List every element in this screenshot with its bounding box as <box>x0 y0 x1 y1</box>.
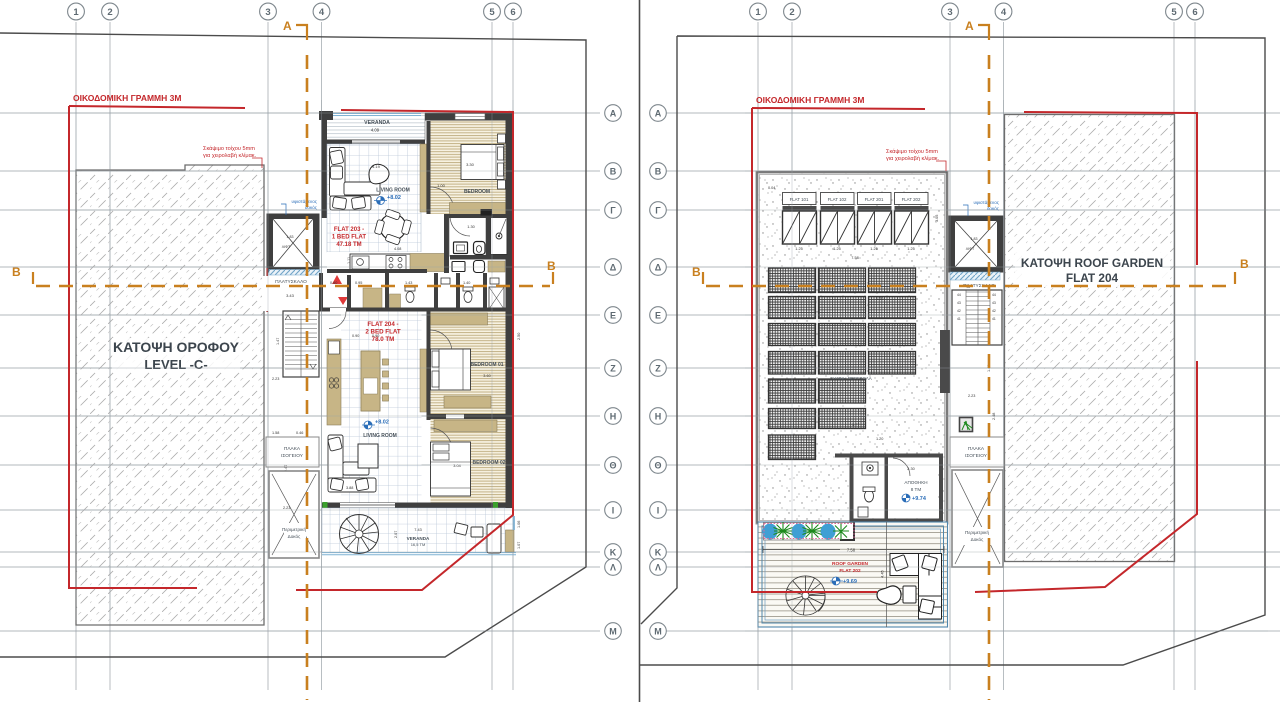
svg-text:2.23: 2.23 <box>283 506 290 510</box>
svg-text:42: 42 <box>992 309 996 313</box>
svg-text:7.58: 7.58 <box>851 256 858 260</box>
svg-text:ΙΣΟΓΕΙΟΥ: ΙΣΟΓΕΙΟΥ <box>281 453 304 459</box>
svg-text:0.90: 0.90 <box>372 334 379 338</box>
svg-text:+9.69: +9.69 <box>843 579 857 585</box>
svg-text:ΙΣΟΓΕΙΟΥ: ΙΣΟΓΕΙΟΥ <box>965 453 988 459</box>
svg-text:BEDROOM 01: BEDROOM 01 <box>470 362 503 368</box>
svg-text:1.20: 1.20 <box>876 297 883 301</box>
svg-text:2 BED FLAT: 2 BED FLAT <box>365 329 401 336</box>
svg-text:B: B <box>547 259 556 273</box>
svg-text:ΚΑΤΟΨΗ ΟΡΟΦΟΥ: ΚΑΤΟΨΗ ΟΡΟΦΟΥ <box>113 339 240 355</box>
svg-text:1.20: 1.20 <box>876 437 883 441</box>
svg-text:1 BED FLAT: 1 BED FLAT <box>332 235 367 241</box>
svg-text:3.60: 3.60 <box>483 374 490 378</box>
svg-text:Δ: Δ <box>655 262 662 272</box>
svg-text:FLAT 201: FLAT 201 <box>865 197 884 202</box>
svg-text:B: B <box>1240 257 1249 271</box>
svg-text:Γ: Γ <box>655 205 661 215</box>
svg-text:47.18 ΤΜ: 47.18 ΤΜ <box>336 242 361 248</box>
svg-text:VERANDA: VERANDA <box>364 120 390 126</box>
svg-text:4: 4 <box>1001 7 1007 18</box>
svg-text:E: E <box>610 310 616 320</box>
svg-text:B: B <box>655 166 662 176</box>
svg-text:1.30: 1.30 <box>467 225 474 229</box>
svg-text:4.45: 4.45 <box>880 569 885 578</box>
svg-text:0.90: 0.90 <box>352 334 359 338</box>
svg-text:K: K <box>610 547 617 557</box>
svg-text:Γ: Γ <box>610 205 616 215</box>
svg-text:LIVING ROOM: LIVING ROOM <box>376 188 410 194</box>
svg-text:H: H <box>610 411 617 421</box>
svg-text:M: M <box>609 626 617 636</box>
svg-text:2.23: 2.23 <box>968 394 975 398</box>
svg-text:2.30: 2.30 <box>907 467 914 471</box>
svg-text:για χειρολαβή κλίμακ.: για χειρολαβή κλίμακ. <box>886 155 940 162</box>
svg-text:Λ: Λ <box>655 562 661 572</box>
svg-text:Σκάψιμο τοίχου 5mm: Σκάψιμο τοίχου 5mm <box>203 145 255 152</box>
svg-text:2: 2 <box>107 7 112 18</box>
svg-text:1.00: 1.00 <box>437 183 446 188</box>
svg-text:42: 42 <box>957 309 961 313</box>
svg-text:Δ: Δ <box>610 262 617 272</box>
svg-text:1.11: 1.11 <box>347 257 351 264</box>
svg-text:4.08: 4.08 <box>394 247 401 251</box>
svg-text:5: 5 <box>489 7 495 18</box>
svg-text:ΠΛΑΤΥΣΚΑΛΟ: ΠΛΑΤΥΣΚΑΛΟ <box>275 279 307 285</box>
svg-text:3.04: 3.04 <box>453 464 460 468</box>
svg-text:ΛΙΦΤ: ΛΙΦΤ <box>966 247 975 251</box>
svg-text:+8.02: +8.02 <box>375 420 389 426</box>
svg-text:BEDROOM: BEDROOM <box>464 189 490 195</box>
svg-text:1.25: 1.25 <box>907 247 914 251</box>
svg-text:FLAT 102: FLAT 102 <box>828 197 847 202</box>
svg-text:ΟΙΚΟΔΟΜΙΚΗ ΓΡΑΜΜΗ 3Μ: ΟΙΚΟΔΟΜΙΚΗ ΓΡΑΜΜΗ 3Μ <box>756 95 864 105</box>
svg-text:I: I <box>657 505 660 515</box>
svg-text:43: 43 <box>957 301 961 305</box>
svg-text:E: E <box>655 310 661 320</box>
svg-text:1.25: 1.25 <box>795 247 802 251</box>
svg-text:FLAT 204 -: FLAT 204 - <box>367 321 398 328</box>
svg-text:8 ΤΜ: 8 ΤΜ <box>911 487 922 492</box>
svg-text:ΛΙΦΤ: ΛΙΦΤ <box>282 245 291 249</box>
svg-text:Z: Z <box>610 363 616 373</box>
svg-text:2.07: 2.07 <box>394 531 398 538</box>
svg-text:B: B <box>692 265 701 279</box>
svg-text:3.43: 3.43 <box>286 293 295 298</box>
svg-text:3.88: 3.88 <box>346 486 353 490</box>
svg-text:1.83: 1.83 <box>287 235 294 239</box>
svg-text:4.09: 4.09 <box>371 128 380 133</box>
svg-text:για χειρολαβή κλίμακ.: για χειρολαβή κλίμακ. <box>203 152 257 159</box>
svg-text:Δοκός: Δοκός <box>288 533 301 539</box>
svg-text:FLAT 203 -: FLAT 203 - <box>334 227 364 233</box>
svg-text:1.47: 1.47 <box>276 338 280 345</box>
svg-text:0.46: 0.46 <box>296 431 303 435</box>
svg-text:2: 2 <box>789 7 794 18</box>
svg-text:FLAT 101: FLAT 101 <box>790 197 809 202</box>
svg-text:υφιστάμενος: υφιστάμενος <box>973 199 999 205</box>
svg-text:ΟΙΚΟΔΟΜΙΚΗ ΓΡΑΜΜΗ 3Μ: ΟΙΚΟΔΟΜΙΚΗ ΓΡΑΜΜΗ 3Μ <box>73 93 181 103</box>
svg-text:44: 44 <box>992 293 996 297</box>
svg-text:2.50: 2.50 <box>517 333 521 340</box>
svg-text:VERANDA: VERANDA <box>407 536 430 541</box>
svg-text:6: 6 <box>510 7 515 18</box>
svg-text:4: 4 <box>319 7 325 18</box>
svg-text:1: 1 <box>755 7 761 18</box>
svg-text:44: 44 <box>957 293 961 297</box>
svg-text:Περιμετρική: Περιμετρική <box>965 529 989 535</box>
svg-text:FLAT 202: FLAT 202 <box>839 568 861 574</box>
svg-text:LEVEL -C-: LEVEL -C- <box>144 357 207 372</box>
svg-text:Z: Z <box>655 363 661 373</box>
svg-text:3.05: 3.05 <box>935 215 939 222</box>
svg-text:1.25: 1.25 <box>833 247 840 251</box>
svg-text:+8.02: +8.02 <box>387 195 401 201</box>
svg-text:Θ: Θ <box>609 460 616 470</box>
svg-text:A: A <box>965 19 974 33</box>
svg-text:H: H <box>655 411 662 421</box>
svg-text:Λ: Λ <box>610 562 616 572</box>
svg-text:3.30: 3.30 <box>466 162 475 167</box>
svg-text:+9.74: +9.74 <box>912 496 927 502</box>
svg-text:41: 41 <box>992 317 996 321</box>
svg-text:6: 6 <box>1192 7 1197 18</box>
svg-text:LIVING ROOM: LIVING ROOM <box>363 433 397 439</box>
svg-text:2.23: 2.23 <box>272 377 279 381</box>
svg-text:Θ: Θ <box>654 460 661 470</box>
svg-text:3.77: 3.77 <box>852 423 859 427</box>
svg-text:FLAT 202: FLAT 202 <box>902 197 921 202</box>
svg-text:ΠΛΑΚΑ: ΠΛΑΚΑ <box>968 446 985 452</box>
svg-text:4.19: 4.19 <box>372 164 381 169</box>
svg-text:1: 1 <box>73 7 79 18</box>
svg-text:41: 41 <box>957 317 961 321</box>
svg-text:ΠΛΑΚΑ: ΠΛΑΚΑ <box>284 446 301 452</box>
svg-text:Σκάψιμο τοίχου 5mm: Σκάψιμο τοίχου 5mm <box>886 148 938 155</box>
svg-text:1.07: 1.07 <box>517 542 521 549</box>
svg-text:A: A <box>283 19 292 33</box>
svg-text:Περιμετρική: Περιμετρική <box>282 526 306 532</box>
svg-text:43: 43 <box>992 301 996 305</box>
svg-text:A: A <box>655 108 662 118</box>
svg-text:1.40: 1.40 <box>463 281 470 285</box>
svg-text:16,5 ΤΜ: 16,5 ΤΜ <box>411 542 426 547</box>
svg-text:ROOF GARDEN: ROOF GARDEN <box>832 561 869 567</box>
svg-text:ΚΑΤΟΨΗ ROOF GARDEN: ΚΑΤΟΨΗ ROOF GARDEN <box>1021 256 1163 270</box>
svg-text:ΞΥΛΙΝΗ ΠΕΡΓΚΟΛΑ: ΞΥΛΙΝΗ ΠΕΡΓΚΟΛΑ <box>830 376 872 381</box>
svg-text:3: 3 <box>265 7 270 18</box>
svg-text:1.25: 1.25 <box>870 247 877 251</box>
svg-text:I: I <box>612 505 615 515</box>
svg-text:1.43: 1.43 <box>405 281 412 285</box>
svg-text:1.06: 1.06 <box>517 521 521 528</box>
svg-text:5: 5 <box>1171 7 1177 18</box>
svg-text:FLAT 204: FLAT 204 <box>1066 271 1119 285</box>
svg-text:ΑΠΟΘΗΚΗ: ΑΠΟΘΗΚΗ <box>904 480 927 485</box>
svg-text:A: A <box>610 108 617 118</box>
svg-text:Δοκός: Δοκός <box>971 536 984 542</box>
svg-text:K: K <box>655 547 662 557</box>
svg-text:1.83: 1.83 <box>971 237 978 241</box>
svg-text:υφιστάμενος: υφιστάμενος <box>291 198 317 204</box>
svg-text:0.95: 0.95 <box>355 281 362 285</box>
svg-text:0.04: 0.04 <box>768 186 775 190</box>
svg-text:M: M <box>654 626 662 636</box>
svg-text:1.58: 1.58 <box>272 431 279 435</box>
svg-text:B: B <box>610 166 617 176</box>
svg-text:7.43: 7.43 <box>414 528 421 532</box>
svg-text:B: B <box>12 265 21 279</box>
svg-text:0.60: 0.60 <box>330 281 337 285</box>
svg-text:3: 3 <box>947 7 952 18</box>
